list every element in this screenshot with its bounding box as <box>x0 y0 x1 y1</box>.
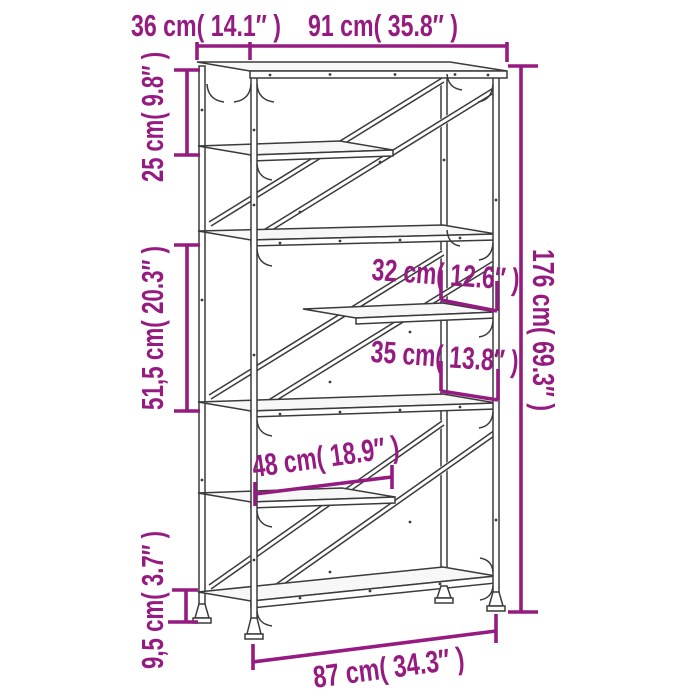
product-dimension-diagram: 36 cm( 14.1″ ) 91 cm( 35.8″ ) 176 cm( 69… <box>0 0 700 700</box>
dimension-top-width: 91 cm( 35.8″ ) <box>250 8 507 62</box>
bookshelf-diagram-svg: 36 cm( 14.1″ ) 91 cm( 35.8″ ) 176 cm( 69… <box>0 0 700 700</box>
dimension-compartment-upper: 32 cm( 12.6″ ) <box>371 252 521 311</box>
ground-clearance-label: 9,5 cm( 3.7″ ) <box>135 531 170 669</box>
top-board <box>197 62 507 78</box>
depth-label: 36 cm( 14.1″ ) <box>131 8 281 43</box>
upper-section-label: 25 cm( 9.8″ ) <box>135 52 170 182</box>
middle-section-label: 51,5 cm( 20.3″ ) <box>135 246 170 410</box>
dimension-compartment-lower: 35 cm( 13.8″ ) <box>370 334 520 400</box>
total-height-label: 176 cm( 69.3″ ) <box>526 249 561 411</box>
base-width-label: 87 cm( 34.3″ ) <box>311 640 466 695</box>
top-width-label: 91 cm( 35.8″ ) <box>308 8 458 43</box>
dimension-base-width: 87 cm( 34.3″ ) <box>253 614 496 695</box>
dimension-total-height: 176 cm( 69.3″ ) <box>508 66 561 612</box>
dimension-middle-section: 51,5 cm( 20.3″ ) <box>135 245 200 411</box>
half-shelf-label: 48 cm( 18.9″ ) <box>250 429 401 484</box>
dimension-ground-clearance: 9,5 cm( 3.7″ ) <box>135 531 198 669</box>
dimension-upper-section: 25 cm( 9.8″ ) <box>135 52 200 182</box>
